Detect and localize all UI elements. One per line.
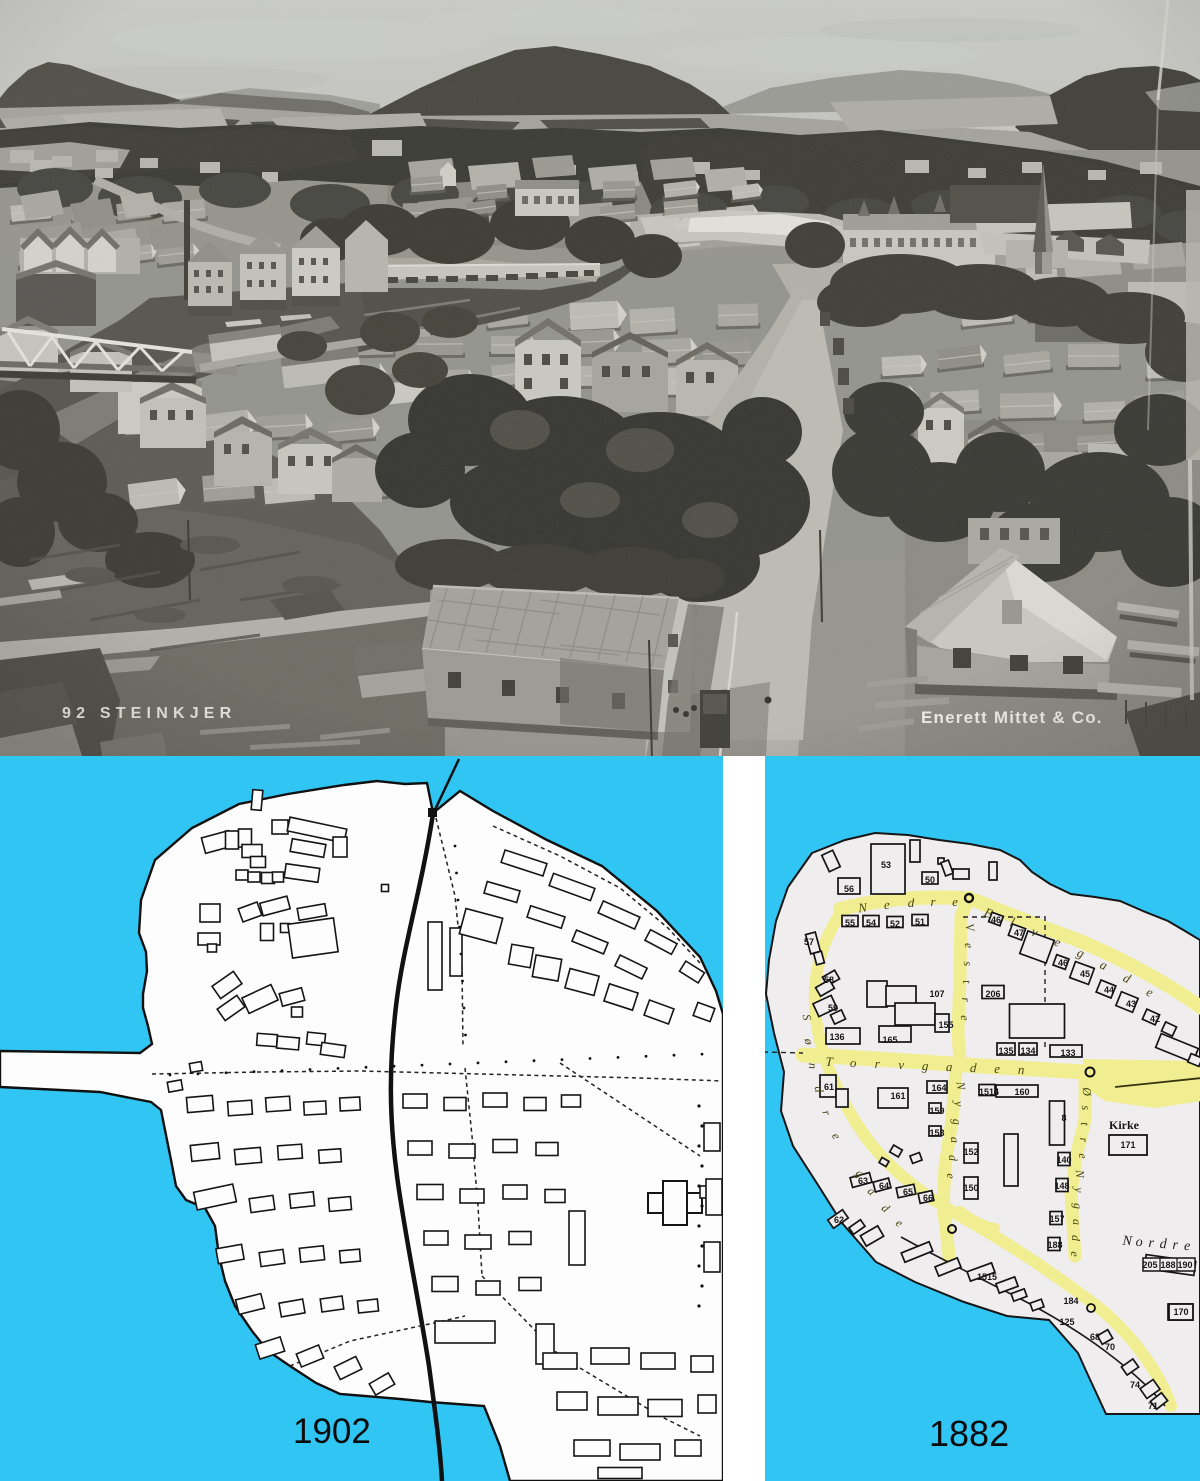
svg-text:74: 74 xyxy=(1130,1380,1140,1390)
svg-text:g: g xyxy=(950,1118,964,1125)
svg-text:N: N xyxy=(1121,1234,1133,1250)
svg-text:e: e xyxy=(1068,1251,1082,1257)
svg-text:45: 45 xyxy=(1080,969,1090,979)
svg-text:161: 161 xyxy=(890,1091,905,1101)
svg-text:1902: 1902 xyxy=(293,1412,371,1451)
svg-text:125: 125 xyxy=(1059,1317,1074,1327)
svg-text:53: 53 xyxy=(881,860,891,870)
svg-text:54: 54 xyxy=(866,918,876,928)
svg-text:1882: 1882 xyxy=(929,1413,1009,1454)
svg-text:N: N xyxy=(1073,1169,1087,1179)
svg-text:56: 56 xyxy=(844,884,854,894)
svg-text:50: 50 xyxy=(925,875,935,885)
svg-text:42: 42 xyxy=(1150,1014,1160,1024)
svg-text:44: 44 xyxy=(1104,985,1114,995)
svg-text:a: a xyxy=(948,1137,962,1143)
svg-text:e: e xyxy=(952,894,958,909)
svg-text:165: 165 xyxy=(882,1035,897,1045)
svg-text:55: 55 xyxy=(845,918,855,928)
svg-text:205: 205 xyxy=(1142,1260,1157,1270)
svg-text:a: a xyxy=(946,1059,954,1074)
svg-text:52: 52 xyxy=(890,919,900,929)
svg-text:160: 160 xyxy=(1014,1087,1029,1097)
svg-text:58: 58 xyxy=(824,975,834,985)
svg-text:135: 135 xyxy=(998,1046,1013,1056)
svg-text:164: 164 xyxy=(931,1083,946,1093)
svg-text:d: d xyxy=(970,1060,978,1075)
svg-text:46: 46 xyxy=(991,915,1001,925)
svg-text:134: 134 xyxy=(1020,1046,1035,1056)
svg-text:157: 157 xyxy=(1049,1214,1064,1224)
svg-text:152: 152 xyxy=(963,1147,978,1157)
svg-text:d: d xyxy=(908,895,915,910)
svg-text:8: 8 xyxy=(1061,1113,1066,1123)
svg-text:y: y xyxy=(1072,1186,1086,1193)
svg-text:62: 62 xyxy=(834,1215,844,1225)
svg-text:140: 140 xyxy=(1056,1155,1071,1165)
svg-text:43: 43 xyxy=(1126,999,1136,1009)
svg-text:d: d xyxy=(1069,1235,1083,1242)
svg-text:e: e xyxy=(994,1061,1001,1076)
svg-text:188: 188 xyxy=(1160,1260,1175,1270)
svg-text:a: a xyxy=(1070,1219,1084,1225)
svg-text:206: 206 xyxy=(985,989,1000,999)
svg-text:155: 155 xyxy=(938,1020,953,1030)
svg-text:47: 47 xyxy=(1014,928,1024,938)
svg-text:150: 150 xyxy=(963,1183,978,1193)
svg-text:190: 190 xyxy=(1177,1260,1192,1270)
svg-text:68: 68 xyxy=(1090,1332,1100,1342)
svg-text:o: o xyxy=(850,1055,858,1070)
svg-text:107: 107 xyxy=(929,989,944,999)
svg-text:e: e xyxy=(883,897,890,912)
svg-text:171: 171 xyxy=(1120,1140,1135,1150)
svg-text:n: n xyxy=(806,1063,820,1069)
svg-text:r: r xyxy=(1077,1137,1091,1142)
svg-text:184: 184 xyxy=(1063,1296,1078,1306)
svg-text:v: v xyxy=(898,1057,905,1072)
svg-text:170: 170 xyxy=(1173,1307,1188,1317)
svg-text:51: 51 xyxy=(915,917,925,927)
svg-text:70: 70 xyxy=(1105,1342,1115,1352)
svg-text:e: e xyxy=(1184,1239,1191,1254)
svg-text:57: 57 xyxy=(804,937,814,947)
svg-text:g: g xyxy=(1071,1203,1085,1209)
svg-text:Kirke: Kirke xyxy=(1109,1118,1140,1132)
svg-text:g: g xyxy=(922,1058,930,1073)
svg-text:o: o xyxy=(1135,1235,1143,1250)
svg-text:46: 46 xyxy=(1058,958,1068,968)
svg-text:136: 136 xyxy=(829,1032,844,1042)
svg-text:64: 64 xyxy=(879,1181,889,1191)
svg-text:133: 133 xyxy=(1060,1048,1075,1058)
svg-text:n: n xyxy=(1018,1062,1025,1077)
svg-text:188: 188 xyxy=(1047,1240,1062,1250)
svg-text:e: e xyxy=(944,1173,958,1179)
svg-text:66: 66 xyxy=(923,1193,933,1203)
svg-text:159: 159 xyxy=(929,1106,944,1116)
svg-text:65: 65 xyxy=(903,1187,913,1197)
svg-text:148: 148 xyxy=(1054,1181,1069,1191)
svg-text:1514: 1514 xyxy=(979,1087,999,1097)
svg-text:153: 153 xyxy=(929,1128,944,1138)
svg-text:59: 59 xyxy=(828,1003,838,1013)
svg-text:1515: 1515 xyxy=(977,1272,997,1282)
svg-text:e: e xyxy=(1076,1153,1090,1159)
svg-text:71: 71 xyxy=(1148,1401,1158,1411)
